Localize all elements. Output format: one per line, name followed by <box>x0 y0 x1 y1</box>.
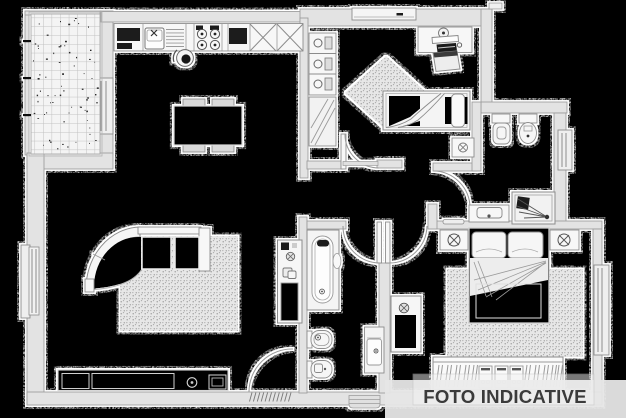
svg-text:FOTO INDICATIVE: FOTO INDICATIVE <box>423 386 586 407</box>
